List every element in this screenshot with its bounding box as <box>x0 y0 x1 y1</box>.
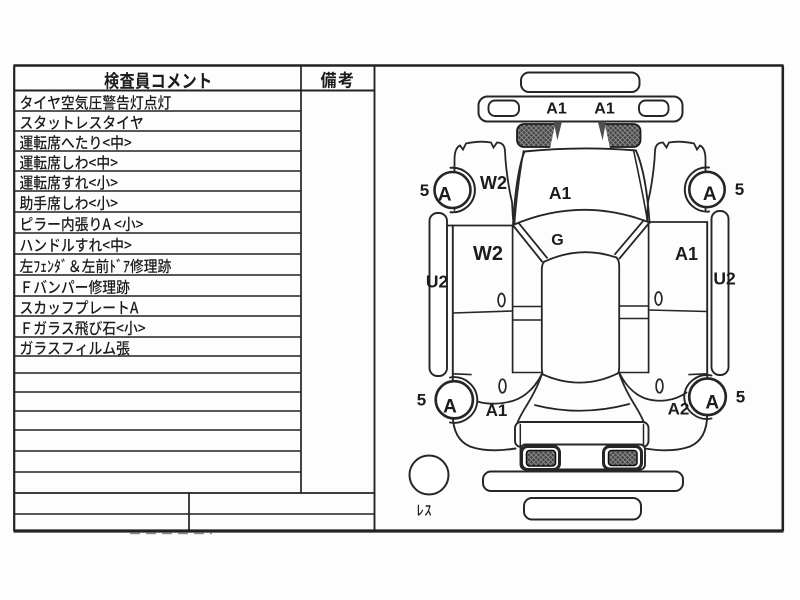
svg-text:5: 5 <box>736 388 745 407</box>
svg-text:A: A <box>705 393 719 414</box>
svg-text:A2: A2 <box>668 400 690 419</box>
svg-text:A1: A1 <box>546 101 567 118</box>
svg-text:A1: A1 <box>675 244 698 264</box>
svg-text:5: 5 <box>417 391 426 410</box>
svg-text:W2: W2 <box>473 243 503 265</box>
svg-text:U2: U2 <box>426 272 449 292</box>
svg-text:G: G <box>551 232 563 249</box>
svg-text:A1: A1 <box>486 401 508 420</box>
svg-text:5: 5 <box>735 180 744 199</box>
svg-text:W2: W2 <box>480 173 507 193</box>
svg-text:5: 5 <box>420 181 429 200</box>
svg-text:A: A <box>438 185 452 206</box>
svg-text:A1: A1 <box>594 101 615 118</box>
svg-text:U2: U2 <box>713 269 736 289</box>
svg-text:A: A <box>703 184 717 205</box>
svg-text:A1: A1 <box>549 183 572 203</box>
svg-text:A: A <box>443 397 457 418</box>
